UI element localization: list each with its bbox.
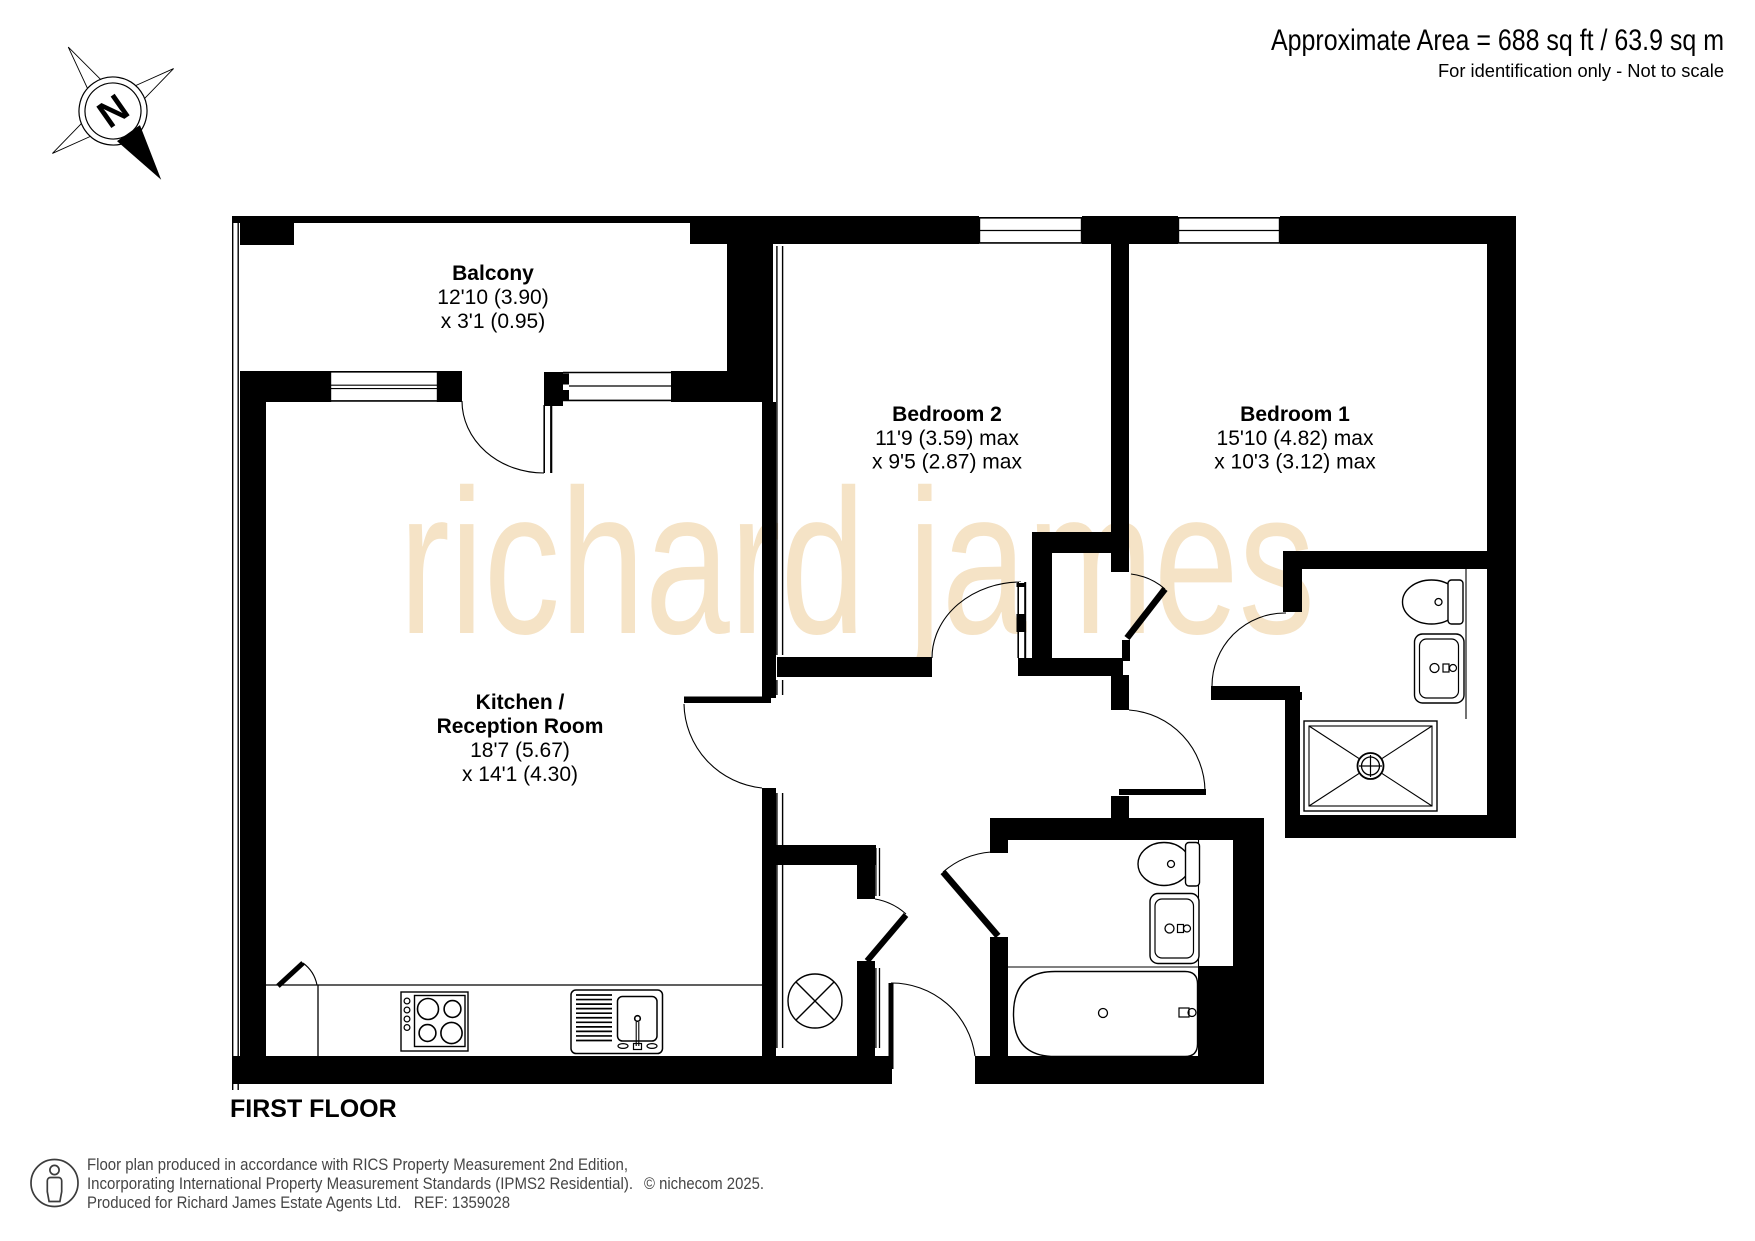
svg-text:Reception Room: Reception Room	[437, 715, 604, 738]
svg-text:18'7 (5.67): 18'7 (5.67)	[470, 739, 570, 762]
svg-text:Bedroom 1: Bedroom 1	[1240, 403, 1350, 426]
svg-text:x 14'1 (4.30): x 14'1 (4.30)	[462, 763, 578, 786]
svg-text:richard james: richard james	[399, 447, 1315, 677]
svg-text:© nichecom 2025.: © nichecom 2025.	[644, 1174, 764, 1193]
svg-text:Balcony: Balcony	[452, 262, 534, 285]
svg-text:Incorporating International Pr: Incorporating International Property Mea…	[87, 1174, 633, 1193]
svg-text:FIRST FLOOR: FIRST FLOOR	[230, 1095, 397, 1123]
svg-text:Approximate Area = 688 sq ft /: Approximate Area = 688 sq ft / 63.9 sq m	[1271, 24, 1724, 57]
svg-text:Kitchen /: Kitchen /	[476, 691, 565, 714]
svg-text:x 9'5 (2.87) max: x 9'5 (2.87) max	[872, 451, 1022, 474]
svg-text:x 3'1 (0.95): x 3'1 (0.95)	[441, 310, 545, 333]
svg-text:Floor plan produced in accorda: Floor plan produced in accordance with R…	[87, 1155, 628, 1174]
svg-text:Produced for Richard James Est: Produced for Richard James Estate Agents…	[87, 1193, 510, 1212]
svg-text:11'9 (3.59) max: 11'9 (3.59) max	[875, 427, 1019, 450]
svg-text:15'10 (4.82) max: 15'10 (4.82) max	[1217, 427, 1374, 450]
svg-text:x 10'3 (3.12) max: x 10'3 (3.12) max	[1214, 451, 1376, 474]
svg-text:12'10 (3.90): 12'10 (3.90)	[437, 286, 548, 309]
svg-text:Bedroom 2: Bedroom 2	[892, 403, 1002, 426]
svg-text:For identification only - Not: For identification only - Not to scale	[1438, 60, 1724, 81]
